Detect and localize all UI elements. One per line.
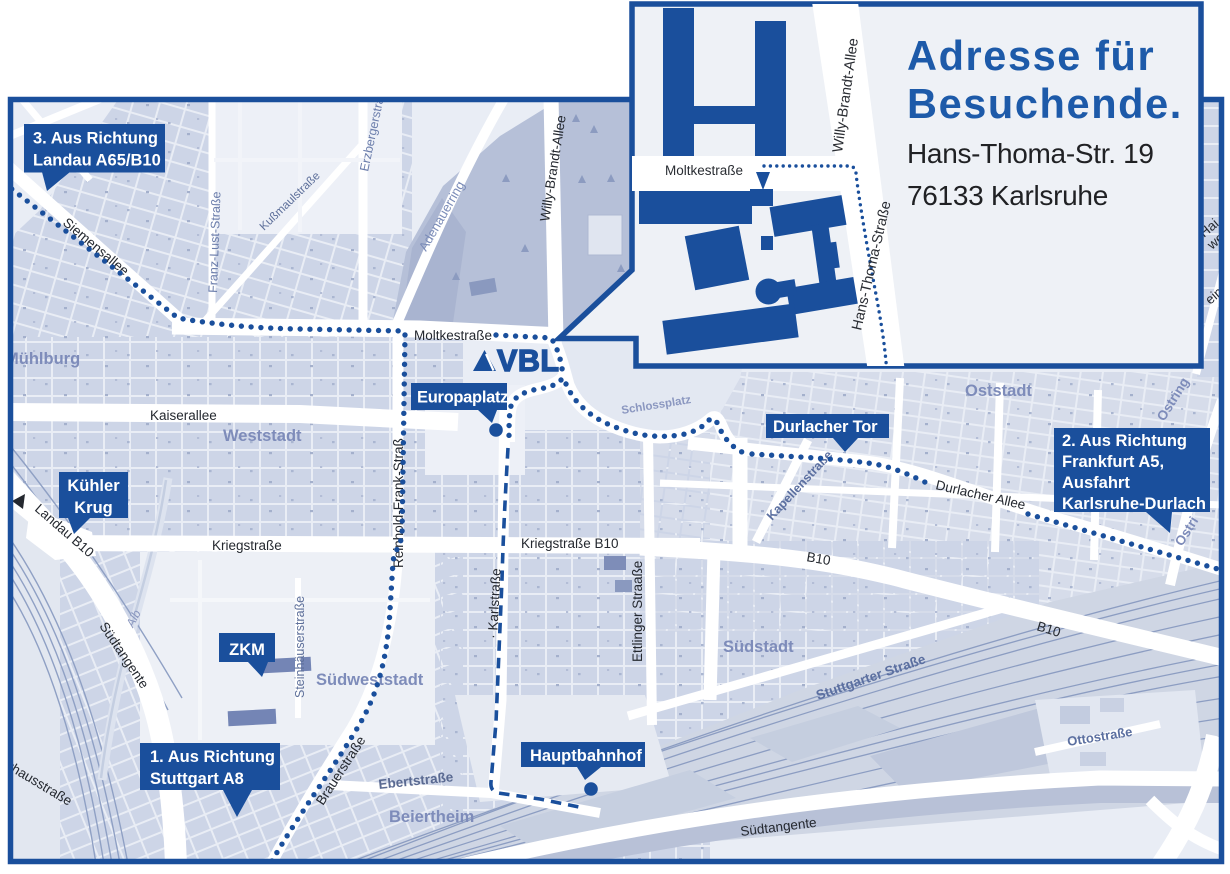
svg-text:2. Aus Richtung: 2. Aus Richtung (1062, 432, 1187, 450)
svg-text:Krug: Krug (74, 499, 113, 517)
svg-text:Hauptbahnhof: Hauptbahnhof (530, 747, 642, 765)
svg-text:VBL: VBL (497, 344, 560, 378)
svg-text:3. Aus Richtung: 3. Aus Richtung (33, 130, 158, 148)
svg-text:Ausfahrt: Ausfahrt (1062, 474, 1130, 492)
svg-text:Besuchende.: Besuchende. (907, 80, 1183, 127)
svg-text:Moltkestraße: Moltkestraße (665, 163, 743, 178)
svg-text:Hans-Thoma-Str. 19: Hans-Thoma-Str. 19 (907, 138, 1154, 169)
svg-text:76133 Karlsruhe: 76133 Karlsruhe (907, 180, 1108, 211)
svg-text:Europaplatz: Europaplatz (417, 389, 508, 407)
svg-text:Kühler: Kühler (67, 477, 120, 495)
svg-text:Südweststadt: Südweststadt (316, 671, 424, 689)
svg-text:Landau A65/B10: Landau A65/B10 (33, 152, 161, 170)
svg-text:Durlacher Tor: Durlacher Tor (773, 418, 878, 436)
svg-text:Kriegstraße: Kriegstraße (212, 538, 282, 553)
svg-text:1. Aus Richtung: 1. Aus Richtung (150, 748, 275, 766)
svg-text:Mühlburg: Mühlburg (5, 350, 80, 368)
svg-text:Stuttgart A8: Stuttgart A8 (150, 770, 244, 788)
svg-text:ZKM: ZKM (229, 641, 265, 659)
svg-text:Weststadt: Weststadt (223, 427, 302, 445)
svg-text:Moltkestraße: Moltkestraße (414, 328, 492, 343)
svg-text:Ettlinger Straaße: Ettlinger Straaße (630, 561, 645, 662)
svg-text:Beiertheim: Beiertheim (389, 808, 474, 826)
svg-text:Steinhäuserstraße: Steinhäuserstraße (293, 596, 307, 698)
svg-text:Kaiserallee: Kaiserallee (150, 408, 217, 423)
svg-text:Kriegstraße B10: Kriegstraße B10 (521, 536, 619, 551)
svg-text:Südstadt: Südstadt (723, 638, 794, 656)
svg-text:Karlsruhe-Durlach: Karlsruhe-Durlach (1062, 495, 1206, 513)
svg-text:Adresse für: Adresse für (907, 32, 1155, 79)
svg-text:Frankfurt A5,: Frankfurt A5, (1062, 453, 1164, 471)
svg-text:Oststadt: Oststadt (965, 382, 1032, 400)
